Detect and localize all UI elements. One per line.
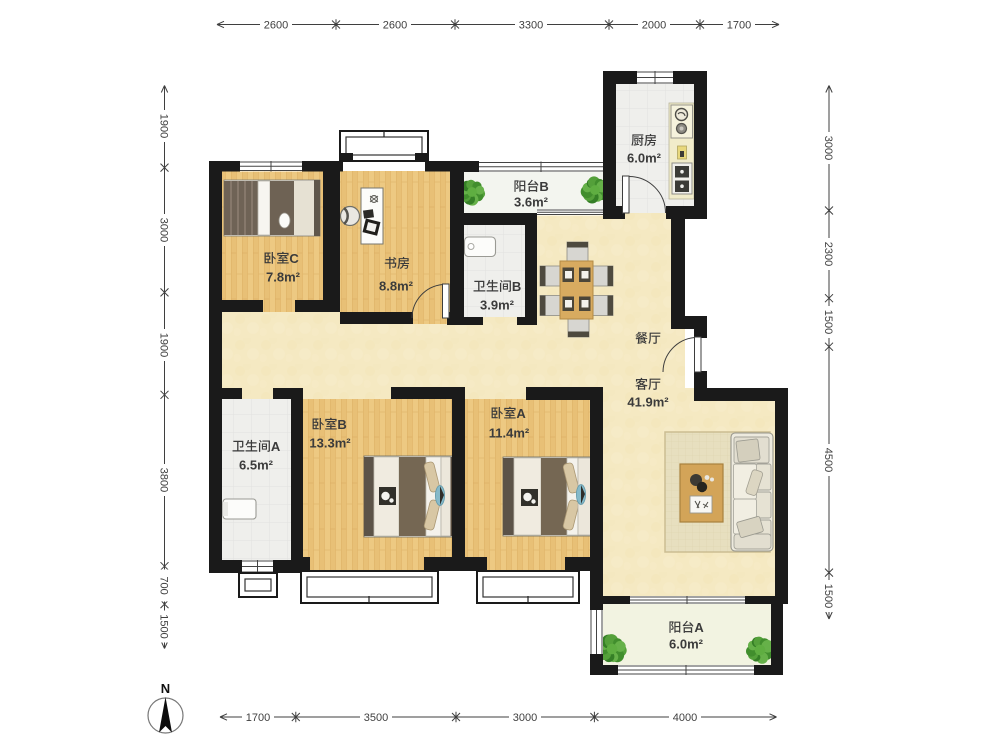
svg-text:1500: 1500 <box>158 614 170 638</box>
svg-text:B: B <box>512 279 521 294</box>
svg-text:2300: 2300 <box>822 242 834 266</box>
svg-text:B: B <box>539 179 548 194</box>
svg-text:3300: 3300 <box>519 19 543 31</box>
svg-text:4500: 4500 <box>822 448 834 472</box>
svg-text:A: A <box>271 439 281 454</box>
svg-text:3.9m²: 3.9m² <box>480 298 515 313</box>
svg-text:A: A <box>516 406 526 421</box>
svg-text:3000: 3000 <box>158 218 170 242</box>
svg-text:7.8m²: 7.8m² <box>266 270 301 285</box>
svg-text:6.0m²: 6.0m² <box>627 151 662 166</box>
svg-text:1500: 1500 <box>822 584 834 608</box>
svg-text:1900: 1900 <box>158 333 170 357</box>
svg-text:3800: 3800 <box>158 468 170 492</box>
svg-text:2600: 2600 <box>383 19 407 31</box>
svg-text:B: B <box>337 417 346 432</box>
svg-text:6.0m²: 6.0m² <box>669 637 704 652</box>
svg-text:N: N <box>161 681 170 696</box>
svg-text:11.4m²: 11.4m² <box>489 426 530 441</box>
svg-text:3000: 3000 <box>513 712 537 724</box>
svg-text:1700: 1700 <box>727 19 751 31</box>
svg-text:2600: 2600 <box>264 19 288 31</box>
svg-text:4000: 4000 <box>673 712 697 724</box>
svg-text:13.3m²: 13.3m² <box>309 436 351 451</box>
svg-text:1500: 1500 <box>822 310 834 334</box>
svg-text:41.9m²: 41.9m² <box>627 395 669 410</box>
svg-text:6.5m²: 6.5m² <box>239 458 274 473</box>
svg-text:3.6m²: 3.6m² <box>514 195 549 210</box>
svg-text:700: 700 <box>158 576 170 594</box>
svg-text:2000: 2000 <box>642 19 666 31</box>
svg-text:1900: 1900 <box>158 114 170 138</box>
svg-text:A: A <box>694 620 704 635</box>
svg-text:3500: 3500 <box>364 712 388 724</box>
svg-text:8.8m²: 8.8m² <box>379 279 414 294</box>
svg-text:C: C <box>289 251 299 266</box>
svg-text:3000: 3000 <box>822 136 834 160</box>
svg-text:1700: 1700 <box>246 712 270 724</box>
